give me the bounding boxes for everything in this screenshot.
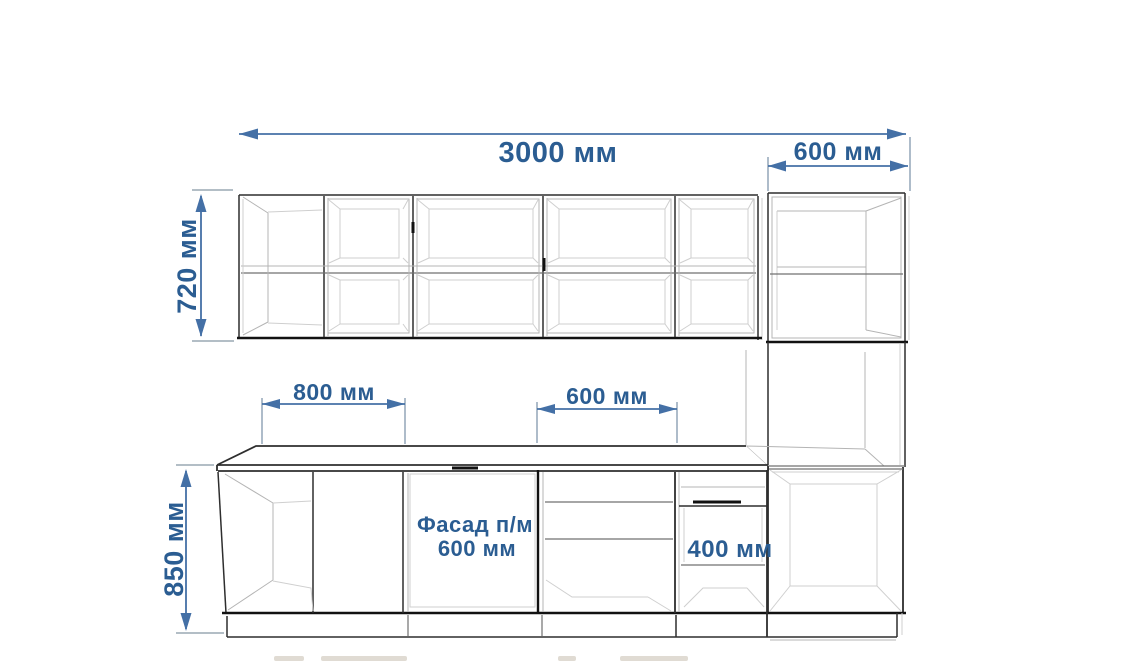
dim-base-mid-width: 600 мм [537, 383, 677, 443]
drawing-canvas: 3000 мм 600 мм 720 мм 850 мм 800 мм 600 … [0, 0, 1123, 661]
kitchen-dimension-drawing: 3000 мм 600 мм 720 мм 850 мм 800 мм 600 … [0, 0, 1123, 661]
dim-column-width: 600 мм [768, 138, 908, 191]
dim-label-base-left-width: 800 мм [293, 379, 375, 405]
plinth [227, 613, 902, 640]
dim-label-total-width: 3000 мм [499, 137, 618, 169]
dim-base-height: 850 мм [159, 465, 224, 633]
dim-label-wall-height: 720 мм [172, 218, 202, 314]
wall-cabinet-row [237, 195, 762, 340]
tall-cabinet-niche [746, 342, 905, 467]
countertop [217, 446, 768, 471]
base-cabinet-open-shelves [545, 502, 673, 611]
facade-note: Фасад п/м 600 мм [417, 512, 533, 561]
dim-label-base-height: 850 мм [159, 501, 189, 597]
tall-cabinet-upper-box [766, 193, 909, 342]
tall-cabinet-lower-box [766, 467, 906, 613]
dim-wall-height: 720 мм [172, 190, 234, 341]
base-cabinet-1-interior [225, 474, 313, 611]
dim-label-base-mid-width: 600 мм [566, 383, 648, 409]
facade-note-line2: 600 мм [438, 536, 516, 561]
dim-label-column-width: 600 мм [794, 138, 883, 166]
facade-note-line1: Фасад п/м [417, 512, 533, 537]
cropped-caption-remnants [274, 656, 688, 661]
dim-base-left-width: 800 мм [262, 379, 405, 444]
dim-label-niche-height: 400 мм [687, 536, 772, 563]
